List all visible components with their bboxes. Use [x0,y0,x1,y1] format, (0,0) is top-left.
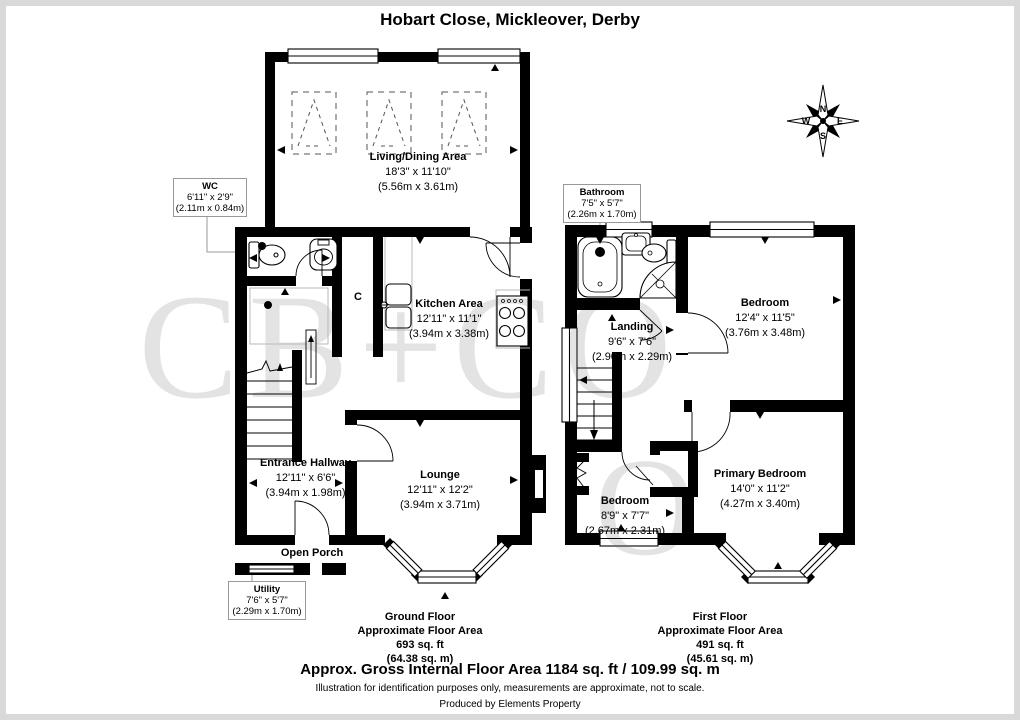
room-dims-m: (5.56m x 3.61m) [328,180,508,195]
open-porch-label: Open Porch [272,546,352,561]
compass-south-label: S [820,131,826,141]
compass-west-label: W [802,116,811,126]
room-dims-m: (2.26m x 1.70m) [565,209,639,220]
floorplan-page: Hobart Close, Mickleover, Derby [0,0,1020,720]
floor-name: First Floor [620,610,820,624]
room-dims-ft: 7'5" x 5'7" [565,198,639,209]
compass-rose: N E S W [778,76,868,166]
room-dims-ft: 12'11" x 6'6" [233,471,378,486]
room-name: Bathroom [565,187,639,198]
room-dims-ft: 6'11" x 2'9" [175,192,245,203]
compass-east-label: E [837,116,843,126]
room-dims-m: (3.76m x 3.48m) [705,326,825,341]
room-dims-ft: 18'3" x 11'10" [328,165,508,180]
room-name: Open Porch [272,546,352,561]
room-dims-m: (2.90m x 2.29m) [572,350,692,365]
room-dims-m: (3.94m x 3.38m) [389,327,509,342]
bathroom-callout: Bathroom 7'5" x 5'7" (2.26m x 1.70m) [563,184,641,223]
floor-area-sqft: 693 sq. ft [320,638,520,652]
room-dims-m: (2.67m x 2.31m) [565,524,685,539]
ground-floor-area-label: Ground Floor Approximate Floor Area 693 … [320,610,520,666]
landing-label: Landing 9'6" x 7'6" (2.90m x 2.29m) [572,320,692,365]
room-dims-ft: 12'11" x 12'2" [380,483,500,498]
wc-callout: WC 6'11" x 2'9" (2.11m x 0.84m) [173,178,247,217]
kitchen-label: Kitchen Area 12'11" x 11'1" (3.94m x 3.3… [389,297,509,342]
room-name: WC [175,181,245,192]
primary-bedroom-label: Primary Bedroom 14'0" x 11'2" (4.27m x 3… [690,467,830,512]
gross-area-text: Approx. Gross Internal Floor Area 1184 s… [0,661,1020,678]
floor-area-title: Approximate Floor Area [320,624,520,638]
room-name: Entrance Hallway [233,456,378,471]
bedroom1-label: Bedroom 12'4" x 11'5" (3.76m x 3.48m) [705,296,825,341]
ground-skylights [292,92,486,154]
page-title: Hobart Close, Mickleover, Derby [0,10,1020,30]
first-floor-area-label: First Floor Approximate Floor Area 491 s… [620,610,820,666]
floor-name: Ground Floor [320,610,520,624]
room-dims-m: (3.94m x 1.98m) [233,486,378,501]
room-name: Landing [572,320,692,335]
room-dims-m: (4.27m x 3.40m) [690,497,830,512]
utility-callout: Utility 7'6" x 5'7" (2.29m x 1.70m) [228,581,306,620]
room-dims-ft: 14'0" x 11'2" [690,482,830,497]
room-name: Bedroom [705,296,825,311]
lounge-label: Lounge 12'11" x 12'2" (3.94m x 3.71m) [380,468,500,513]
room-name: Lounge [380,468,500,483]
room-dims-m: (2.11m x 0.84m) [175,203,245,214]
room-dims-ft: 7'6" x 5'7" [230,595,304,606]
compass-center [820,118,826,124]
room-dims-m: (3.94m x 3.71m) [380,498,500,513]
room-dims-m: (2.29m x 1.70m) [230,606,304,617]
room-dims-ft: 8'9" x 7'7" [565,509,685,524]
compass-north-label: N [820,104,827,114]
room-name: Utility [230,584,304,595]
producer-text: Produced by Elements Property [0,699,1020,710]
room-name: Kitchen Area [389,297,509,312]
room-name: Living/Dining Area [328,150,508,165]
floor-area-sqft: 491 sq. ft [620,638,820,652]
room-name: Bedroom [565,494,685,509]
room-dims-ft: 12'4" x 11'5" [705,311,825,326]
entrance-hallway-label: Entrance Hallway 12'11" x 6'6" (3.94m x … [233,456,378,501]
room-name: Primary Bedroom [690,467,830,482]
room-dims-ft: 12'11" x 11'1" [389,312,509,327]
bedroom2-label: Bedroom 8'9" x 7'7" (2.67m x 2.31m) [565,494,685,539]
floor-area-title: Approximate Floor Area [620,624,820,638]
disclaimer-text: Illustration for identification purposes… [0,683,1020,694]
cupboard-label: C [350,291,366,303]
living-dining-label: Living/Dining Area 18'3" x 11'10" (5.56m… [328,150,508,195]
room-dims-ft: 9'6" x 7'6" [572,335,692,350]
